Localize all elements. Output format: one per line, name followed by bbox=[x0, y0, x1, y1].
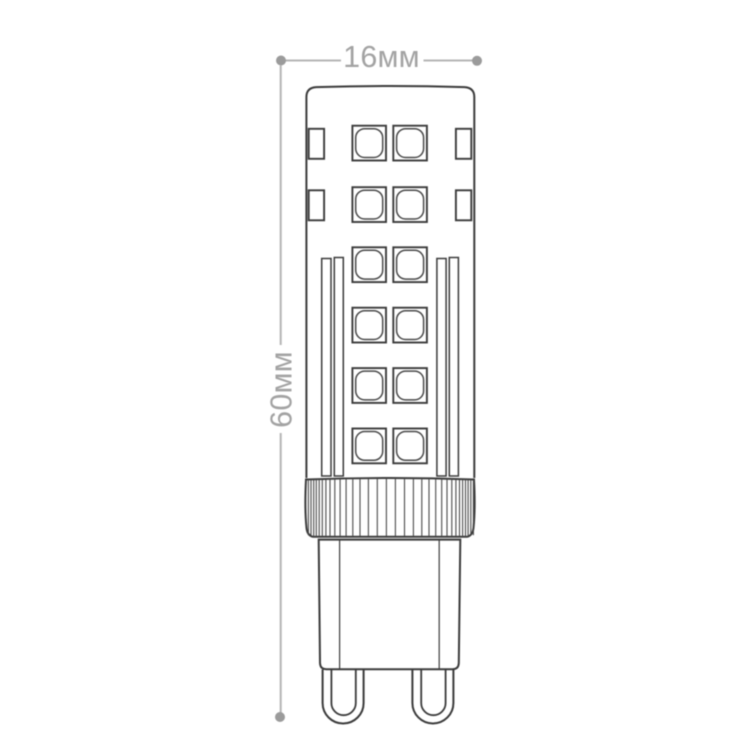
svg-text:16мм: 16мм bbox=[343, 40, 420, 74]
svg-text:60мм: 60мм bbox=[265, 351, 299, 428]
